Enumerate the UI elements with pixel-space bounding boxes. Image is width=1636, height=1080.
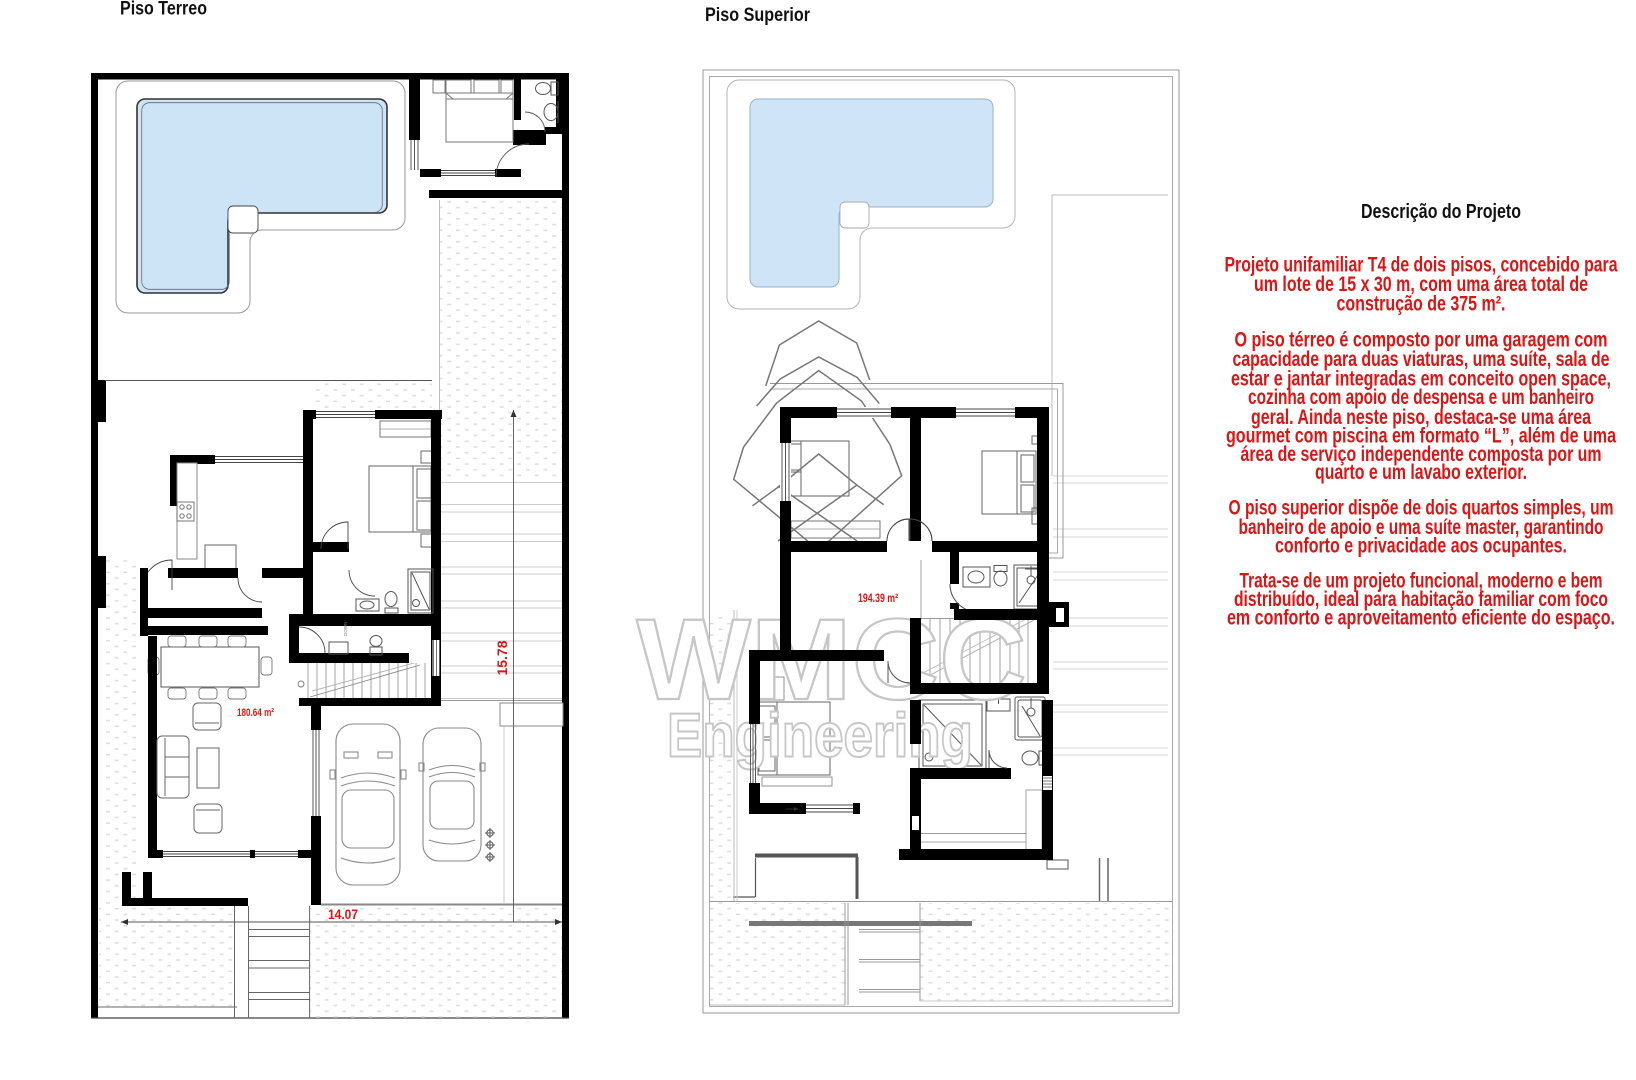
svg-text:quarto e um lavabo exterior.: quarto e um lavabo exterior.: [1315, 461, 1527, 484]
svg-text:Engineering: Engineering: [667, 702, 973, 771]
svg-text:em conforto e aproveitamento e: em conforto e aproveitamento eficiente d…: [1227, 607, 1615, 630]
svg-text:Piso Terreo: Piso Terreo: [120, 0, 207, 20]
svg-text:DOWN: DOWN: [343, 622, 348, 636]
svg-text:Piso Superior: Piso Superior: [705, 5, 811, 26]
svg-text:construção de 375 m².: construção de 375 m².: [1337, 293, 1506, 316]
svg-text:180.64 m²: 180.64 m²: [237, 707, 274, 719]
svg-text:conforto e privacidade aos ocu: conforto e privacidade aos ocupantes.: [1275, 535, 1567, 558]
svg-text:Descrição do Projeto: Descrição do Projeto: [1361, 201, 1521, 223]
svg-text:15.78: 15.78: [495, 640, 510, 675]
svg-text:14.07: 14.07: [328, 907, 358, 922]
